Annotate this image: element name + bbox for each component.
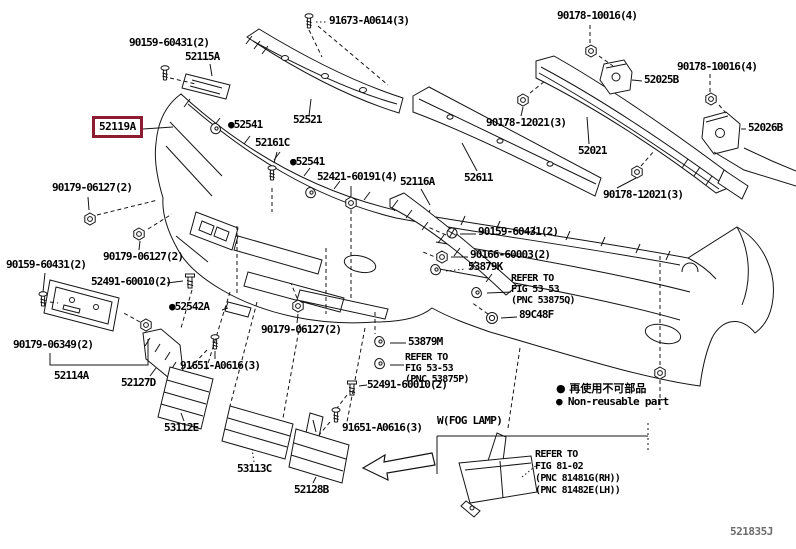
label-52115a[interactable]: 52115A bbox=[185, 51, 219, 63]
label-90178-12021-b[interactable]: 90178-12021(3) bbox=[603, 189, 683, 201]
legend-nonreusable-jp: ● 再使用不可部品 bbox=[556, 380, 646, 396]
nut-icon bbox=[141, 319, 151, 331]
label-89c48f[interactable]: 89C48F bbox=[519, 309, 553, 321]
retainer-clip-icon bbox=[431, 264, 441, 274]
label-52541-b[interactable]: ●52541 bbox=[290, 156, 324, 168]
label-53112e[interactable]: 53112E bbox=[164, 422, 198, 434]
label-52127d[interactable]: 52127D bbox=[121, 377, 155, 389]
label-90179-06127-b[interactable]: 90179-06127(2) bbox=[103, 251, 183, 263]
label-52541-a[interactable]: ●52541 bbox=[228, 119, 262, 131]
label-91673-a0614[interactable]: 91673-A0614(3) bbox=[329, 15, 409, 27]
nut-icon bbox=[85, 213, 95, 225]
label-90179-06127-c[interactable]: 90179-06127(2) bbox=[261, 324, 341, 336]
label-52521[interactable]: 52521 bbox=[293, 114, 322, 126]
label-52611[interactable]: 52611 bbox=[464, 172, 493, 184]
note-53875p[interactable]: REFER TO FIG 53-53 (PNC 53875P) bbox=[405, 352, 469, 385]
retainer-clip-icon bbox=[375, 358, 385, 368]
label-91651-a0616-b[interactable]: 91651-A0616(3) bbox=[342, 422, 422, 434]
nut-icon bbox=[134, 228, 144, 240]
nut-icon bbox=[437, 251, 447, 263]
fog-lamp-unit-drawing bbox=[459, 433, 537, 517]
retainer-clip-icon bbox=[472, 287, 482, 297]
retainer-52115a bbox=[182, 74, 230, 99]
label-90178-10016-a[interactable]: 90178-10016(4) bbox=[557, 10, 637, 22]
nut-icon bbox=[632, 166, 642, 178]
label-52161c[interactable]: 52161C bbox=[255, 137, 289, 149]
retainer-clip-icon bbox=[375, 336, 385, 346]
energy-absorber-52611 bbox=[413, 87, 601, 196]
label-52421-60191[interactable]: 52421-60191(4) bbox=[317, 171, 397, 183]
label-90159-60431-c[interactable]: 90159-60431(2) bbox=[478, 226, 558, 238]
label-53879m[interactable]: 53879M bbox=[408, 336, 442, 348]
fog-cover-52128b bbox=[289, 413, 349, 483]
bolt-icon bbox=[186, 274, 195, 288]
label-90179-06127-a[interactable]: 90179-06127(2) bbox=[52, 182, 132, 194]
label-52116a[interactable]: 52116A bbox=[400, 176, 434, 188]
nut-icon bbox=[293, 300, 303, 312]
fog-section-header: W(FOG LAMP) bbox=[437, 414, 502, 427]
label-53113c[interactable]: 53113C bbox=[237, 463, 271, 475]
nut-icon bbox=[346, 197, 356, 209]
nut-icon bbox=[706, 93, 716, 105]
label-90178-10016-b[interactable]: 90178-10016(4) bbox=[677, 61, 757, 73]
label-52025b[interactable]: 52025B bbox=[644, 74, 678, 86]
label-52491-60010-a[interactable]: 52491-60010(2) bbox=[91, 276, 171, 288]
screw-icon bbox=[161, 66, 169, 80]
label-90159-60431-b[interactable]: 90159-60431(2) bbox=[6, 259, 86, 271]
pointer-arrow-icon bbox=[363, 453, 435, 480]
label-91651-a0616-a[interactable]: 91651-A0616(3) bbox=[180, 360, 260, 372]
nut-icon bbox=[518, 94, 528, 106]
retainer-clip-icon bbox=[306, 187, 316, 197]
label-52114a[interactable]: 52114A bbox=[54, 370, 88, 382]
retainer-clip-icon bbox=[211, 123, 221, 133]
screw-icon bbox=[305, 14, 313, 28]
grommet-icon bbox=[487, 313, 498, 324]
label-90178-12021-a[interactable]: 90178-12021(3) bbox=[486, 117, 566, 129]
label-52542a[interactable]: ●52542A bbox=[169, 301, 209, 313]
fog-refer-note: REFER TO FIG 81-02 (PNC 81481G(RH)) (PNC… bbox=[535, 449, 620, 497]
nut-icon bbox=[655, 367, 665, 379]
pad-52542a bbox=[225, 302, 251, 317]
nut-icon bbox=[586, 45, 596, 57]
drawing-number: 521835J bbox=[730, 525, 773, 538]
label-90159-60431-a[interactable]: 90159-60431(2) bbox=[129, 37, 209, 49]
label-53879k[interactable]: 53879K bbox=[468, 261, 502, 273]
legend-nonreusable-en: ● Non-reusable part bbox=[556, 395, 669, 408]
label-52128b[interactable]: 52128B bbox=[294, 484, 328, 496]
parts-diagram-page: 52119A 90159-60431(2)52115A91673-A0614(3… bbox=[0, 0, 796, 549]
grille-53113c bbox=[222, 406, 293, 459]
selected-part-box[interactable]: 52119A bbox=[92, 116, 143, 138]
label-52026b[interactable]: 52026B bbox=[748, 122, 782, 134]
bolt-icon bbox=[348, 381, 357, 395]
note-53875q[interactable]: REFER TO FIG 53 53 (PNC 53875Q) bbox=[511, 273, 575, 306]
radiator-support-52521 bbox=[246, 29, 403, 113]
screw-icon bbox=[332, 408, 340, 422]
label-90179-06349[interactable]: 90179-06349(2) bbox=[13, 339, 93, 351]
label-52021[interactable]: 52021 bbox=[578, 145, 607, 157]
